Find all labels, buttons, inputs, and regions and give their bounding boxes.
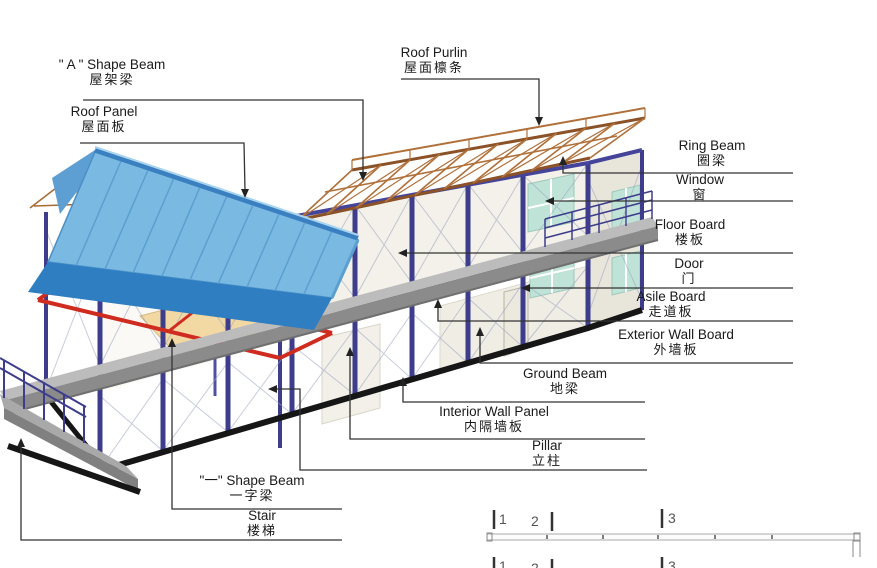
label-en: Roof Purlin [401,45,468,60]
leader-roof-purlin [401,79,539,118]
arrow-left-icon [268,385,277,393]
ruler-mark-2b: 2 [531,560,539,568]
interior-wall-panel-shape [322,324,380,424]
label-window: Window 窗 [676,172,724,202]
label-zh: 屋面板 [71,119,138,134]
label-asile-board: Asile Board 走道板 [636,289,705,319]
label-one-shape-beam: "一" Shape Beam 一字梁 [200,473,305,503]
label-zh: 屋面檩条 [401,60,468,75]
ruler-mark-3: 3 [668,510,676,526]
label-en: Exterior Wall Board [618,327,734,342]
label-zh: 立柱 [532,453,562,468]
label-floor-board: Floor Board 楼板 [655,217,726,247]
label-zh: 圈梁 [679,153,746,168]
label-en: " A " Shape Beam [59,57,165,72]
label-en: Stair [247,508,277,523]
arrow-up-icon [17,438,25,447]
label-ground-beam: Ground Beam 地梁 [523,366,607,396]
label-en: Asile Board [636,289,705,304]
label-en: Interior Wall Panel [439,404,549,419]
label-en: "一" Shape Beam [200,473,305,488]
label-stair: Stair 楼梯 [247,508,277,538]
label-door: Door 门 [674,256,703,286]
label-en: Window [676,172,724,187]
label-zh: 外墙板 [618,342,734,357]
label-zh: 地梁 [523,381,607,396]
label-en: Roof Panel [71,104,138,119]
label-en: Door [674,256,703,271]
arrow-down-icon [535,117,543,126]
label-zh: 门 [674,271,703,286]
label-en: Ring Beam [679,138,746,153]
ruler-mark-1b: 1 [499,558,507,568]
label-zh: 窗 [676,187,724,202]
ruler-mark-3b: 3 [668,558,676,568]
label-zh: 走道板 [636,304,705,319]
label-en: Pillar [532,438,562,453]
label-zh: 楼梯 [247,523,277,538]
label-a-shape-beam: " A " Shape Beam 屋架梁 [59,57,165,87]
label-zh: 内隔墙板 [439,419,549,434]
label-zh: 楼板 [655,232,726,247]
ruler-mark-2: 2 [531,513,539,529]
ruler-ticks-row1 [494,509,662,531]
ruler-mark-1: 1 [499,511,507,527]
label-pillar: Pillar 立柱 [532,438,562,468]
roof-panel-shape [28,147,358,330]
label-zh: 一字梁 [200,488,305,503]
label-roof-panel: Roof Panel 屋面板 [71,104,138,134]
label-exterior-wall-board: Exterior Wall Board 外墙板 [618,327,734,357]
label-zh: 屋架梁 [59,72,165,87]
label-en: Floor Board [655,217,726,232]
label-interior-wall-panel: Interior Wall Panel 内隔墙板 [439,404,549,434]
diagram-page: " A " Shape Beam 屋架梁 Roof Panel 屋面板 Roof… [0,0,877,568]
label-roof-purlin: Roof Purlin 屋面檩条 [401,45,468,75]
label-ring-beam: Ring Beam 圈梁 [679,138,746,168]
ruler-ticks-row2 [494,557,662,568]
label-en: Ground Beam [523,366,607,381]
